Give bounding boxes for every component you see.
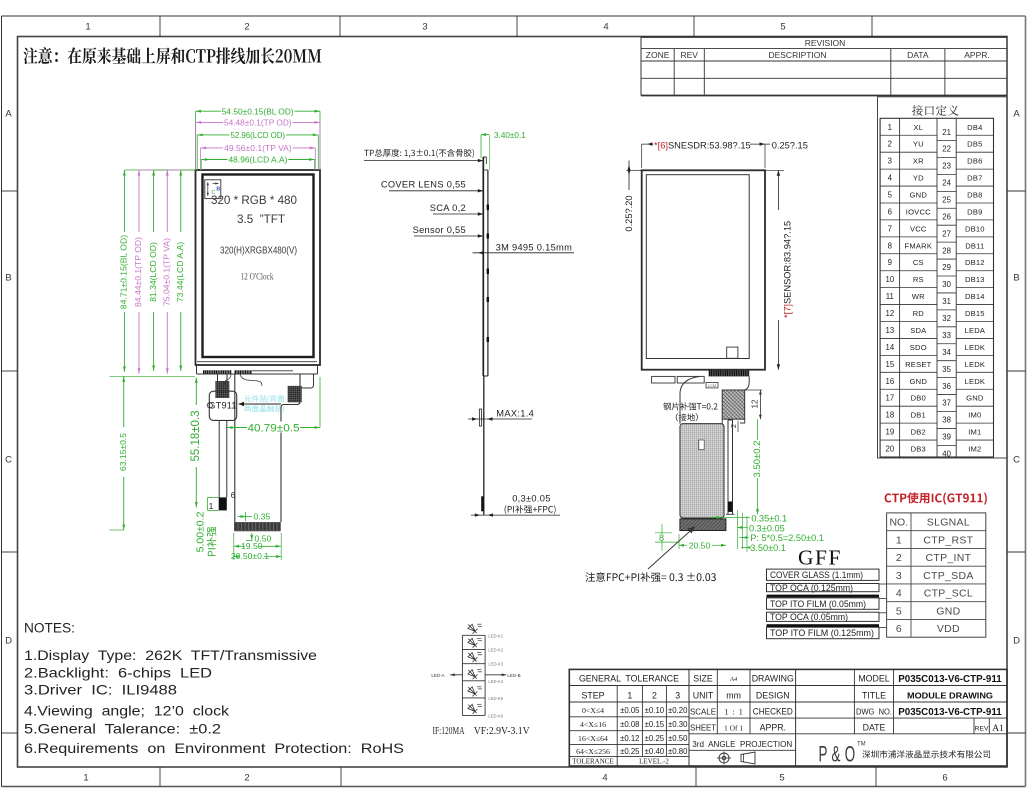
- svg-text:4<X≤16: 4<X≤16: [580, 720, 606, 729]
- svg-text:23: 23: [942, 162, 951, 171]
- svg-text:3.50±0.2: 3.50±0.2: [752, 441, 763, 478]
- svg-text:8: 8: [888, 241, 892, 250]
- svg-text:±0.25: ±0.25: [645, 734, 665, 743]
- svg-text:DB14: DB14: [965, 292, 985, 301]
- svg-text:2: 2: [244, 773, 249, 784]
- svg-text:LED-B: LED-B: [507, 673, 520, 678]
- svg-text:P035C013-V6-CTP-911: P035C013-V6-CTP-911: [898, 707, 1002, 718]
- svg-text:GND: GND: [910, 377, 928, 386]
- svg-text:63.15±0.5: 63.15±0.5: [118, 433, 128, 471]
- svg-text:A1: A1: [992, 724, 1004, 734]
- svg-text:0.35±0.1: 0.35±0.1: [751, 514, 787, 524]
- svg-text:1 : 1: 1 : 1: [724, 708, 742, 717]
- svg-text:28: 28: [942, 246, 951, 255]
- svg-text:XL: XL: [913, 123, 923, 132]
- svg-text:2: 2: [888, 140, 892, 149]
- svg-text:VF:2.9V-3.1V: VF:2.9V-3.1V: [474, 726, 530, 737]
- svg-text:D: D: [5, 636, 12, 647]
- svg-text:1: 1: [209, 501, 214, 511]
- svg-text:40.79±0.5: 40.79±0.5: [248, 423, 300, 435]
- svg-text:26: 26: [942, 212, 951, 221]
- svg-text:±0.15: ±0.15: [645, 720, 665, 729]
- svg-text:mm: mm: [726, 691, 741, 701]
- svg-text:IM1: IM1: [968, 428, 981, 437]
- svg-text:52.96(LCD OD): 52.96(LCD OD): [230, 130, 285, 140]
- svg-text:18: 18: [886, 411, 895, 420]
- svg-text:2: 2: [652, 691, 657, 701]
- svg-text:0<X≤4: 0<X≤4: [582, 706, 604, 715]
- svg-text:5.General Talerance: ±0.2: 5.General Talerance: ±0.2: [24, 721, 221, 737]
- svg-text:30: 30: [942, 280, 951, 289]
- svg-text:3M 9495 0.15mm: 3M 9495 0.15mm: [496, 243, 573, 253]
- svg-text:P & O: P & O: [819, 742, 856, 767]
- svg-text:320 * RGB * 480: 320 * RGB * 480: [211, 195, 297, 207]
- svg-text:LEDK: LEDK: [965, 377, 986, 386]
- svg-text:B: B: [216, 187, 220, 193]
- svg-text:±0.40: ±0.40: [645, 747, 665, 756]
- svg-text:SDO: SDO: [910, 343, 927, 352]
- svg-text:2.Backlight: 6-chips LED: 2.Backlight: 6-chips LED: [24, 665, 212, 681]
- svg-text:9: 9: [888, 258, 892, 267]
- svg-text:LEDA: LEDA: [965, 326, 986, 335]
- svg-text:27: 27: [942, 229, 951, 238]
- svg-text:±0.30: ±0.30: [668, 720, 688, 729]
- svg-text:17: 17: [886, 394, 895, 403]
- svg-text:4: 4: [603, 22, 608, 33]
- svg-text:DB13: DB13: [965, 275, 985, 284]
- svg-text:320(H)XRGBX480(V): 320(H)XRGBX480(V): [220, 246, 297, 257]
- svg-text:35: 35: [942, 365, 951, 374]
- svg-text:±0.05: ±0.05: [620, 706, 640, 715]
- svg-text:REV: REV: [680, 50, 698, 60]
- svg-text:WR: WR: [912, 292, 925, 301]
- svg-text:DATA: DATA: [907, 50, 929, 60]
- svg-text:3.40±0.1: 3.40±0.1: [494, 131, 526, 140]
- svg-text:73.44(LCD A.A): 73.44(LCD A.A): [175, 242, 185, 302]
- svg-text:29: 29: [942, 263, 951, 272]
- svg-text:16: 16: [886, 377, 895, 386]
- svg-text:UNIT: UNIT: [693, 691, 714, 701]
- svg-text:IM2: IM2: [968, 445, 981, 454]
- svg-text:DATE: DATE: [863, 722, 886, 732]
- svg-text:3: 3: [888, 157, 892, 166]
- svg-text:1: 1: [85, 22, 90, 33]
- svg-text:C: C: [5, 455, 12, 466]
- svg-text:12 O'Clock: 12 O'Clock: [241, 273, 274, 283]
- svg-text:GND: GND: [936, 605, 960, 617]
- svg-text:0.35: 0.35: [254, 512, 271, 522]
- svg-text:0,3±0.05: 0,3±0.05: [512, 494, 551, 504]
- svg-text:NO.: NO.: [889, 517, 908, 529]
- svg-text:A: A: [5, 109, 12, 120]
- svg-text:LED-K1: LED-K1: [488, 633, 503, 638]
- svg-text:5.00±0.2: 5.00±0.2: [195, 511, 207, 552]
- svg-text:5: 5: [896, 605, 902, 617]
- svg-text:LEDK: LEDK: [965, 360, 986, 369]
- svg-text:VCC: VCC: [910, 224, 927, 233]
- svg-text:0.25?.20: 0.25?.20: [624, 195, 634, 231]
- svg-text:38: 38: [942, 416, 951, 425]
- svg-text:4: 4: [888, 174, 893, 183]
- svg-text:DB15: DB15: [965, 309, 985, 318]
- svg-text:LED-K3: LED-K3: [488, 662, 503, 667]
- svg-text:B: B: [1013, 273, 1019, 284]
- svg-text:14: 14: [886, 343, 895, 352]
- svg-text:NOTES:: NOTES:: [24, 621, 75, 636]
- svg-text:REVISION: REVISION: [805, 38, 846, 48]
- svg-text:YD: YD: [913, 174, 924, 183]
- svg-text:21: 21: [942, 128, 951, 137]
- svg-text:TM: TM: [857, 742, 866, 748]
- svg-text:±0.08: ±0.08: [620, 720, 639, 729]
- svg-text:DB4: DB4: [967, 123, 982, 132]
- svg-text:*[6]SNESDR:53.98?.15: *[6]SNESDR:53.98?.15: [654, 140, 751, 150]
- svg-text:36: 36: [942, 382, 951, 391]
- svg-text:12: 12: [750, 399, 759, 408]
- svg-text:31: 31: [942, 297, 951, 306]
- svg-text:1: 1: [627, 691, 632, 701]
- svg-text:C: C: [1013, 455, 1020, 466]
- svg-text:32: 32: [942, 314, 951, 323]
- svg-text:0.25?.15: 0.25?.15: [772, 140, 808, 150]
- svg-text:TOLERANCE: TOLERANCE: [572, 758, 613, 766]
- svg-text:±0.50: ±0.50: [668, 734, 688, 743]
- svg-text:3.50±0.1: 3.50±0.1: [750, 543, 786, 553]
- svg-text:IF:120MA: IF:120MA: [433, 726, 465, 737]
- svg-text:LEDK: LEDK: [965, 343, 986, 352]
- svg-text:P035C013-V6-CTP-911: P035C013-V6-CTP-911: [898, 674, 1002, 685]
- svg-text:3.5 ”TFT: 3.5 ”TFT: [237, 214, 285, 226]
- svg-text:37: 37: [942, 399, 951, 408]
- svg-text:33: 33: [942, 331, 951, 340]
- svg-text:24: 24: [942, 179, 951, 188]
- svg-text:16<X≤64: 16<X≤64: [578, 734, 608, 743]
- svg-text:MODULE DRAWING: MODULE DRAWING: [907, 691, 993, 701]
- svg-text:D: D: [1013, 636, 1020, 647]
- svg-text:DRAWING: DRAWING: [752, 674, 794, 684]
- svg-text:DB8: DB8: [967, 191, 982, 200]
- svg-text:64<X≤256: 64<X≤256: [576, 747, 610, 756]
- svg-text:19: 19: [886, 428, 895, 437]
- svg-text:LCM: LCM: [708, 383, 716, 388]
- svg-text:5: 5: [780, 22, 785, 33]
- svg-text:DB12: DB12: [965, 258, 985, 267]
- svg-text:1: 1: [896, 534, 902, 546]
- svg-text:84.71±0.15(BL OD): 84.71±0.15(BL OD): [119, 235, 129, 309]
- svg-text:13: 13: [886, 326, 895, 335]
- svg-text:10: 10: [886, 275, 895, 284]
- svg-text:DB9: DB9: [967, 207, 982, 216]
- svg-text:GFF: GFF: [798, 546, 842, 570]
- svg-text:MODEL: MODEL: [858, 674, 889, 684]
- svg-text:VDD: VDD: [937, 623, 960, 635]
- svg-text:A4: A4: [729, 676, 738, 683]
- svg-text:DB11: DB11: [965, 241, 984, 250]
- svg-text:1.Display Type: 262K TFT/Tr: 1.Display Type: 262K TFT/Transmissive: [24, 647, 317, 663]
- svg-text:49.56±0.1(TP VA): 49.56±0.1(TP VA): [224, 143, 292, 153]
- svg-text:GND: GND: [910, 191, 928, 200]
- svg-text:DWG NO.: DWG NO.: [856, 707, 892, 717]
- svg-text:SCA 0,2: SCA 0,2: [430, 203, 466, 213]
- svg-text:2: 2: [729, 424, 738, 428]
- svg-text:SDA: SDA: [910, 326, 927, 335]
- svg-text:P: 5*0.5=2.50±0.1: P: 5*0.5=2.50±0.1: [750, 533, 824, 543]
- svg-text:±0.80: ±0.80: [668, 747, 688, 756]
- svg-text:3: 3: [422, 22, 427, 33]
- svg-text:7: 7: [888, 224, 892, 233]
- svg-text:55.18±0.3: 55.18±0.3: [190, 410, 202, 461]
- svg-text:81.34(LCD OD): 81.34(LCD OD): [148, 242, 158, 302]
- svg-text:DB6: DB6: [967, 157, 982, 166]
- svg-text:6.Requirements on Environmen: 6.Requirements on Environment Protection…: [24, 740, 404, 756]
- svg-text:20: 20: [886, 445, 895, 454]
- svg-text:DB5: DB5: [967, 140, 982, 149]
- svg-text:12: 12: [886, 309, 895, 318]
- svg-text:STEP: STEP: [582, 691, 605, 701]
- svg-text:DB3: DB3: [911, 445, 926, 454]
- svg-text:3.Driver IC: ILI9488: 3.Driver IC: ILI9488: [24, 682, 177, 698]
- svg-text:A: A: [1013, 109, 1020, 120]
- svg-text:B: B: [5, 273, 11, 284]
- svg-text:COVER LENS 0,55: COVER LENS 0,55: [381, 180, 466, 190]
- svg-text:6: 6: [896, 623, 902, 635]
- svg-text:11: 11: [886, 292, 894, 301]
- svg-text:RESET: RESET: [905, 360, 931, 369]
- svg-text:CTP_INT: CTP_INT: [925, 552, 971, 564]
- svg-text:4: 4: [602, 773, 607, 784]
- svg-text:APPR.: APPR.: [760, 722, 786, 732]
- svg-text:SCALE: SCALE: [690, 707, 716, 717]
- svg-text:0.3±0.05: 0.3±0.05: [749, 523, 785, 533]
- svg-text:8: 8: [659, 533, 664, 543]
- svg-text:Sensor 0,55: Sensor 0,55: [413, 225, 466, 235]
- svg-text:3: 3: [675, 691, 680, 701]
- svg-text:DB2: DB2: [911, 428, 926, 437]
- svg-text:DB1: DB1: [911, 411, 926, 420]
- svg-text:34: 34: [942, 348, 951, 357]
- svg-text:TOP ITO FILM (0.125mm): TOP ITO FILM (0.125mm): [770, 628, 874, 638]
- svg-text:XR: XR: [913, 157, 924, 166]
- svg-text:FMARK: FMARK: [905, 241, 933, 250]
- svg-text:3rd ANGLE PROJECTION: 3rd ANGLE PROJECTION: [692, 739, 792, 749]
- svg-text:ZONE: ZONE: [646, 50, 670, 60]
- svg-text:54.50±0.15(BL OD): 54.50±0.15(BL OD): [222, 106, 294, 116]
- svg-text:1: 1: [83, 773, 88, 784]
- svg-text:DB10: DB10: [965, 224, 985, 233]
- svg-text:CTP_SDA: CTP_SDA: [923, 570, 974, 582]
- svg-text:±0.20: ±0.20: [668, 706, 688, 715]
- svg-text:2: 2: [896, 552, 902, 564]
- svg-text:TOP ITO FILM (0.05mm): TOP ITO FILM (0.05mm): [770, 599, 866, 609]
- svg-text:1: 1: [888, 123, 892, 132]
- svg-text:CTP_SCL: CTP_SCL: [924, 588, 973, 600]
- svg-text:GND: GND: [966, 394, 984, 403]
- svg-text:RS: RS: [913, 275, 924, 284]
- svg-text:YU: YU: [913, 140, 924, 149]
- svg-text:±0.25: ±0.25: [620, 747, 640, 756]
- svg-text:DESCRIPTION: DESCRIPTION: [768, 50, 826, 60]
- svg-text:TITLE: TITLE: [862, 691, 886, 701]
- svg-text:DB0: DB0: [911, 394, 926, 403]
- svg-text:15: 15: [886, 360, 895, 369]
- svg-text:SLGNAL: SLGNAL: [927, 517, 970, 529]
- svg-text:54.48±0.1(TP OD): 54.48±0.1(TP OD): [224, 118, 292, 128]
- svg-text:25: 25: [942, 196, 951, 205]
- svg-text:IM0: IM0: [968, 411, 981, 420]
- svg-text:20.50: 20.50: [689, 540, 711, 550]
- svg-text:SIZE: SIZE: [693, 674, 713, 684]
- svg-text:4: 4: [896, 588, 902, 600]
- svg-text:39: 39: [942, 433, 951, 442]
- svg-text:LED-K4: LED-K4: [488, 679, 503, 684]
- svg-text:TOP OCA (0.05mm): TOP OCA (0.05mm): [770, 612, 848, 622]
- svg-text:±0.12: ±0.12: [620, 734, 639, 743]
- svg-text:40: 40: [942, 450, 951, 459]
- svg-text:6: 6: [888, 207, 892, 216]
- svg-text:CTP_RST: CTP_RST: [923, 534, 973, 546]
- svg-text:5: 5: [888, 191, 893, 200]
- svg-text:APPR.: APPR.: [964, 50, 990, 60]
- svg-text:GENERAL TOLERANCE: GENERAL TOLERANCE: [579, 674, 679, 684]
- svg-text:75.04±0.1(TP VA): 75.04±0.1(TP VA): [162, 238, 172, 306]
- svg-text:TOP OCA (0.125mm): TOP OCA (0.125mm): [770, 583, 853, 593]
- svg-text:±0.10: ±0.10: [645, 706, 665, 715]
- svg-text:LED-K6: LED-K6: [488, 713, 503, 718]
- svg-text:5: 5: [779, 773, 784, 784]
- svg-text:84.44±0.1(TP OD): 84.44±0.1(TP OD): [133, 237, 143, 307]
- svg-text:4.Viewing angle; 12’0 clock: 4.Viewing angle; 12’0 clock: [24, 703, 230, 719]
- svg-text:COVER GLASS (1.1mm): COVER GLASS (1.1mm): [770, 570, 863, 580]
- svg-text:6: 6: [942, 773, 947, 784]
- svg-text:1 Of 1: 1 Of 1: [724, 723, 743, 732]
- svg-text:LEVEL.-2: LEVEL.-2: [639, 758, 669, 766]
- svg-text:RD: RD: [913, 309, 925, 318]
- svg-text:LED-K2: LED-K2: [488, 647, 503, 652]
- svg-text:DB7: DB7: [967, 174, 982, 183]
- svg-text:DESIGN: DESIGN: [756, 691, 790, 701]
- svg-text:LED-A: LED-A: [431, 673, 444, 678]
- svg-text:48.96(LCD A.A): 48.96(LCD A.A): [229, 155, 288, 165]
- svg-text:SHEET: SHEET: [690, 722, 716, 732]
- svg-text:3: 3: [896, 570, 902, 582]
- svg-text:*[7]SENSOR:83.94?.15: *[7]SENSOR:83.94?.15: [783, 221, 793, 318]
- svg-text:22: 22: [942, 145, 951, 154]
- svg-text:CHECKED: CHECKED: [753, 707, 793, 717]
- svg-text:IOVCC: IOVCC: [906, 207, 931, 216]
- svg-text:2: 2: [244, 22, 249, 33]
- svg-text:CS: CS: [913, 258, 924, 267]
- svg-text:MAX:1.4: MAX:1.4: [496, 409, 534, 419]
- svg-text:LED-K5: LED-K5: [488, 696, 503, 701]
- svg-text:REV: REV: [975, 725, 989, 732]
